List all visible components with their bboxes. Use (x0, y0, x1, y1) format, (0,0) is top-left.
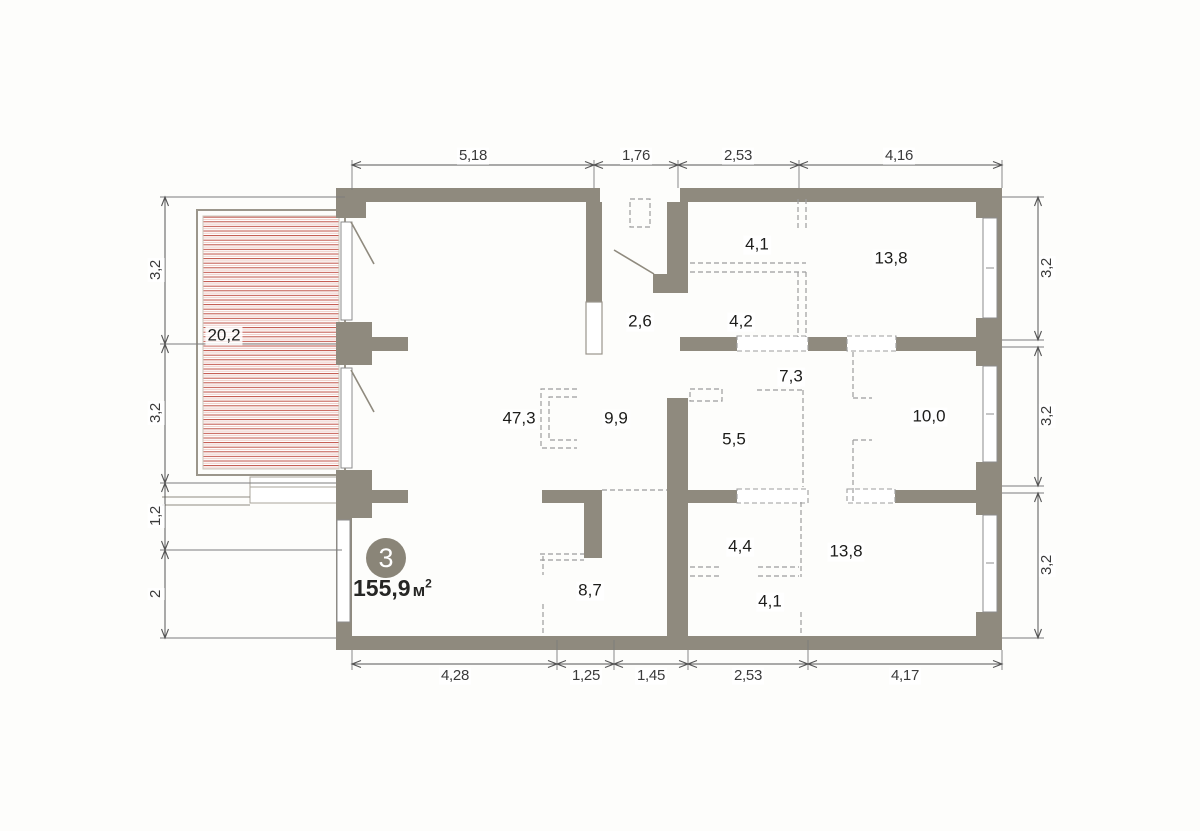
total-area: 155,9м2 (353, 575, 432, 602)
total-area-unit: м (413, 581, 426, 600)
room-area-bath-mid: 5,5 (720, 431, 748, 450)
room-area-balcony: 20,2 (205, 327, 242, 346)
dim-right-1: 3,2 (1039, 256, 1056, 280)
dim-left-2: 3,2 (148, 401, 165, 425)
room-area-kitchen: 9,9 (602, 410, 630, 429)
dim-bottom-1: 4,28 (439, 668, 471, 685)
room-area-bath-top: 4,2 (727, 313, 755, 332)
dim-left-3: 1,2 (148, 504, 165, 528)
room-area-hall-bottom: 8,7 (576, 582, 604, 601)
dim-bottom-5: 4,17 (889, 668, 921, 685)
unit-number-badge: 3 (366, 538, 406, 578)
room-area-bedroom-top-right: 13,8 (872, 250, 909, 269)
floor-plan-drawing (0, 0, 1200, 831)
room-area-living: 47,3 (500, 410, 537, 429)
room-area-bedroom-bottom-right: 13,8 (827, 543, 864, 562)
unit-number: 3 (378, 543, 393, 574)
dim-top-4: 4,16 (883, 148, 915, 165)
shaft (586, 302, 602, 354)
dim-top-2: 1,76 (620, 148, 652, 165)
total-area-value: 155,9 (353, 575, 411, 601)
dim-right-3: 3,2 (1039, 553, 1056, 577)
room-area-corridor: 7,3 (777, 368, 805, 387)
wall-openings (737, 336, 896, 503)
room-area-wardrobe-bottom: 4,1 (756, 593, 784, 612)
dim-left-4: 2 (148, 588, 165, 600)
floor-plan: 5,18 1,76 2,53 4,16 4,28 1,25 1,45 2,53 … (0, 0, 1200, 831)
room-area-hall: 2,6 (626, 313, 654, 332)
door-leaves (351, 222, 654, 412)
dim-top-3: 2,53 (722, 148, 754, 165)
dim-bottom-2: 1,25 (570, 668, 602, 685)
balcony-hatch (162, 210, 345, 505)
dim-bottom-4: 2,53 (732, 668, 764, 685)
room-area-bath-bottom: 4,4 (726, 538, 754, 557)
total-area-unit-sup: 2 (425, 576, 432, 590)
room-area-wardrobe-top: 4,1 (743, 236, 771, 255)
dim-bottom-3: 1,45 (635, 668, 667, 685)
dim-right-2: 3,2 (1039, 404, 1056, 428)
dim-left-1: 3,2 (148, 258, 165, 282)
room-area-bedroom-right: 10,0 (910, 408, 947, 427)
dim-top-1: 5,18 (457, 148, 489, 165)
